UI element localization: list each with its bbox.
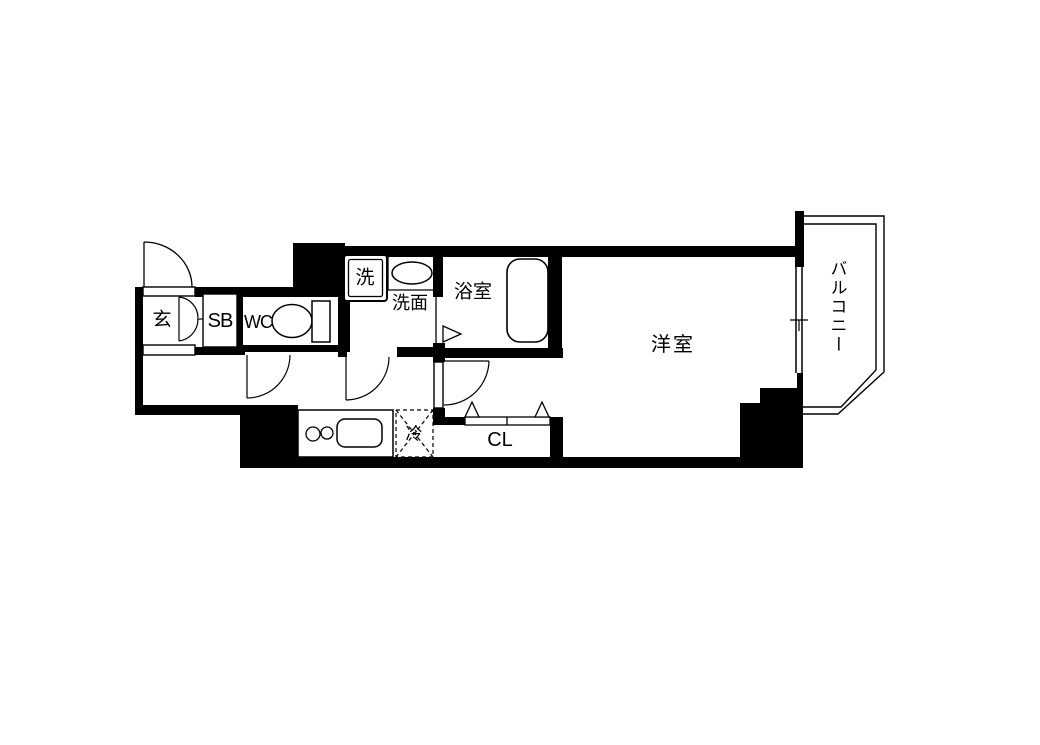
closet-door-marker-right <box>535 402 549 417</box>
entrance-door-arc <box>144 242 192 287</box>
wall-bath-south <box>433 348 563 358</box>
wall-balcony-stub <box>795 211 804 267</box>
entrance-door <box>144 242 192 287</box>
wall-bath-right <box>548 248 562 348</box>
bathtub <box>507 259 548 342</box>
toilet-bowl <box>272 305 312 338</box>
label-refrigerator: 冷 <box>406 426 423 443</box>
wall-top-main <box>338 246 797 257</box>
closet-sliding-door <box>465 402 550 425</box>
wc-door-arc <box>247 355 290 398</box>
label-western-room: 洋室 <box>651 335 695 355</box>
shoebox-doors <box>179 297 203 341</box>
wall-sb-wc-divider <box>237 288 243 352</box>
label-toilet: WC <box>244 313 272 331</box>
label-washroom: 洗面 <box>392 294 428 312</box>
floorplan-drawing <box>0 0 1040 745</box>
label-balcony: バルコニー <box>829 260 846 355</box>
stove-burner-right <box>321 427 333 439</box>
wall-step-column <box>797 373 803 468</box>
kitchen-sink <box>337 419 382 447</box>
washroom-sink <box>388 257 435 290</box>
doorway-opening <box>434 362 443 408</box>
wall-washroom-bottom-left <box>338 347 347 357</box>
shoebox-door-arc-top <box>179 297 198 318</box>
wall-step-1 <box>740 403 760 468</box>
wall-left <box>135 287 143 415</box>
label-genkan: 玄 <box>152 311 171 330</box>
wall-closet-right <box>550 417 563 460</box>
wall-washroom-bottom-right <box>397 347 433 357</box>
genkan-step <box>143 345 195 355</box>
wall-wc-bottom <box>243 345 338 352</box>
wall-under-sb <box>195 347 245 355</box>
wall-step-2 <box>760 388 797 468</box>
western-room-door-arc <box>444 361 489 405</box>
wall-wc-right <box>338 297 350 352</box>
sink-basin <box>392 262 432 284</box>
washroom-door-arc <box>346 357 389 400</box>
label-washing-machine: 洗 <box>355 269 374 288</box>
wall-corridor-bottom <box>135 405 240 415</box>
bathroom-door-arrow <box>443 326 461 342</box>
kitchen <box>298 410 393 457</box>
label-bathroom: 浴室 <box>454 283 492 302</box>
wall-door-post-bottom <box>433 408 445 425</box>
entrance-threshold <box>143 287 195 296</box>
wall-corner-chunk <box>293 243 345 297</box>
stove-burner-left <box>306 427 320 441</box>
toilet-tank <box>312 301 330 342</box>
toilet <box>272 301 330 342</box>
wall-closet-stub <box>445 417 465 425</box>
shoebox-door-arc-bottom <box>179 319 198 341</box>
floorplan: 玄 SB WC 洗 洗面 浴室 洋室 CL 冷 バルコニー <box>0 0 1040 745</box>
interior-doors <box>247 355 489 405</box>
wall-block-left <box>240 405 298 468</box>
balcony-window <box>790 267 808 373</box>
label-shoe-box: SB <box>208 311 233 331</box>
closet-door-marker-left <box>465 402 479 417</box>
label-closet: CL <box>487 430 513 450</box>
bathroom-folding-door <box>436 297 461 343</box>
